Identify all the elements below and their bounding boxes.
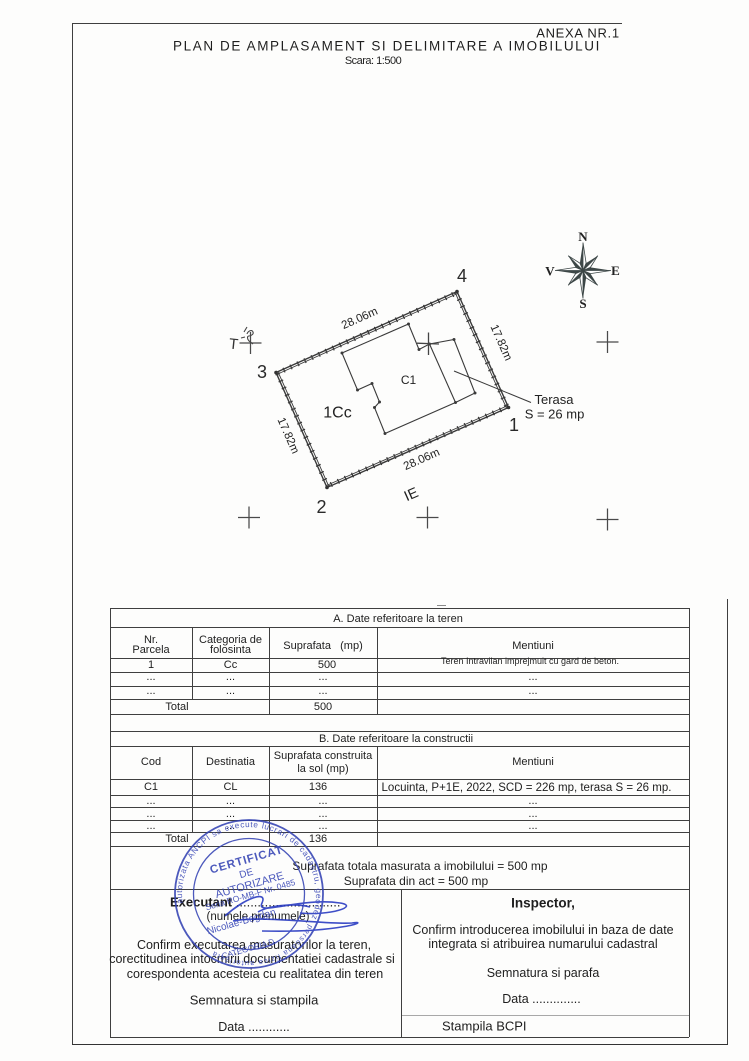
svg-text:autorizata ANCPI sa execute lu: autorizata ANCPI sa execute lucrari de c…: [0, 0, 323, 921]
svg-text:C1: C1: [401, 373, 417, 387]
svg-text:28.06m: 28.06m: [402, 446, 442, 473]
svg-text:3: 3: [257, 362, 267, 382]
svg-text:IE: IE: [402, 485, 421, 505]
svg-text:17.82m: 17.82m: [487, 323, 514, 363]
svg-text:Nicolae-Bogdan: Nicolae-Bogdan: [206, 907, 277, 937]
svg-text:Terasa: Terasa: [534, 392, 574, 407]
svg-text:E: E: [611, 263, 620, 278]
svg-text:1: 1: [509, 415, 519, 435]
svg-text:T: T: [228, 336, 239, 354]
svg-text:N: N: [578, 229, 588, 244]
svg-text:2: 2: [316, 497, 326, 517]
svg-text:S = 26 mp: S = 26 mp: [525, 407, 585, 422]
svg-text:1Cc: 1Cc: [323, 405, 351, 422]
svg-text:V: V: [545, 264, 555, 279]
svg-text:17.82m: 17.82m: [274, 416, 301, 456]
svg-text:S: S: [579, 296, 586, 311]
svg-text:4: 4: [457, 266, 467, 286]
